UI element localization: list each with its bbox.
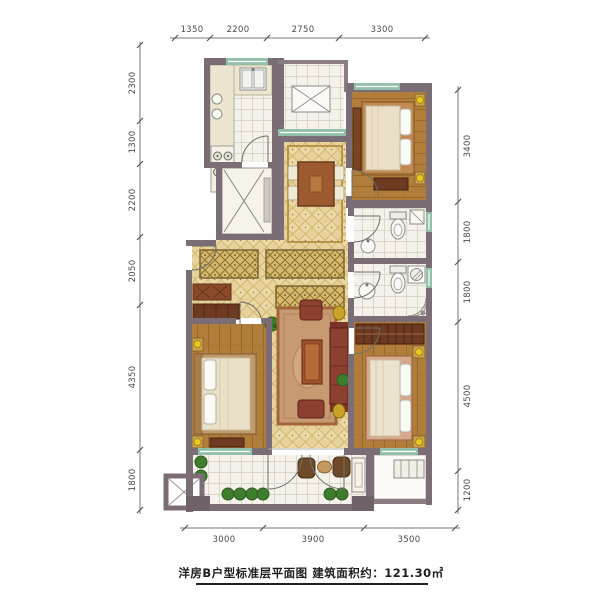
lamp bbox=[417, 97, 424, 104]
balcony-chair bbox=[333, 457, 350, 477]
lamp bbox=[416, 439, 423, 446]
balcony-table bbox=[318, 461, 332, 473]
dim-label: 2050 bbox=[128, 260, 138, 283]
service-balcony bbox=[292, 86, 330, 112]
dim-label: 2200 bbox=[128, 189, 138, 212]
toilet bbox=[390, 266, 406, 273]
dim-label: 1300 bbox=[128, 131, 138, 154]
pillow bbox=[204, 394, 216, 424]
floor-plan: 1350 2200 2750 3300 2300 1300 2200 2050 … bbox=[0, 0, 600, 612]
toilet bbox=[390, 212, 406, 219]
dim-label: 3000 bbox=[213, 535, 236, 545]
bed-bench bbox=[210, 438, 244, 447]
armchair bbox=[300, 300, 322, 320]
bedroom-3 bbox=[192, 338, 256, 448]
shoe-cabinet bbox=[193, 284, 231, 300]
dining-chair bbox=[334, 186, 344, 200]
dim-label: 1350 bbox=[181, 25, 204, 35]
dim-left: 2300 1300 2200 2050 4350 1800 bbox=[128, 42, 143, 514]
dim-label: 1800 bbox=[128, 469, 138, 492]
elevator-door bbox=[264, 178, 270, 222]
armchair bbox=[298, 400, 324, 418]
lamp bbox=[417, 175, 424, 182]
dim-label: 1800 bbox=[463, 221, 473, 244]
dim-label: 3900 bbox=[302, 535, 325, 545]
pillow bbox=[400, 400, 411, 432]
pillow bbox=[400, 139, 411, 165]
dining-chair bbox=[288, 186, 298, 200]
bed-bench bbox=[374, 178, 408, 190]
floor-plan-page: 1350 2200 2750 3300 2300 1300 2200 2050 … bbox=[0, 0, 600, 612]
dim-top: 1350 2200 2750 3300 bbox=[170, 25, 430, 41]
dim-label: 1800 bbox=[463, 281, 473, 304]
living-room bbox=[278, 300, 349, 424]
dim-right: 3400 1800 1800 4500 1200 bbox=[455, 86, 473, 514]
dim-label: 2750 bbox=[292, 25, 315, 35]
potted-plant bbox=[337, 374, 349, 386]
lamp bbox=[416, 349, 423, 356]
dim-label: 3300 bbox=[371, 25, 394, 35]
pillow bbox=[400, 109, 411, 135]
side-table bbox=[333, 404, 345, 418]
dim-label: 2200 bbox=[227, 25, 250, 35]
pillow bbox=[204, 360, 216, 390]
lamp bbox=[194, 439, 201, 446]
plan-caption: 洋房B户型标准层平面图 建筑面积约：121.30㎡ bbox=[178, 566, 443, 580]
dim-label: 4350 bbox=[128, 366, 138, 389]
dim-label: 2300 bbox=[128, 72, 138, 95]
dim-label: 4500 bbox=[463, 385, 473, 408]
dim-label: 3400 bbox=[463, 135, 473, 158]
caption-group: 洋房B户型标准层平面图 建筑面积约：121.30㎡ bbox=[178, 566, 443, 584]
lamp bbox=[194, 341, 201, 348]
dim-label: 3500 bbox=[398, 535, 421, 545]
side-table bbox=[333, 306, 345, 320]
dim-bottom: 3000 3900 3500 bbox=[180, 525, 460, 545]
wardrobe bbox=[353, 108, 361, 170]
elevator bbox=[222, 168, 272, 234]
dim-label: 1200 bbox=[463, 479, 473, 502]
dining-chair bbox=[334, 166, 344, 180]
dining-chair bbox=[288, 166, 298, 180]
basin bbox=[212, 94, 222, 104]
pillow bbox=[400, 364, 411, 396]
